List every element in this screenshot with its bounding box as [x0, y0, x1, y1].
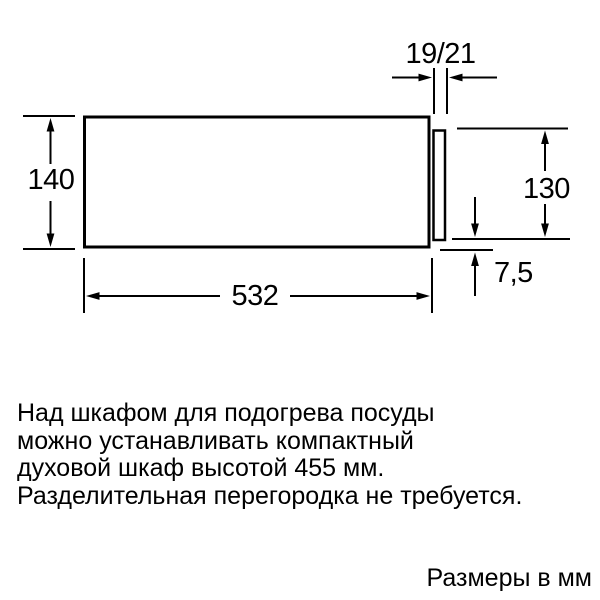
note-line-3: духовой шкаф высотой 455 мм. [17, 455, 595, 483]
note-line-1: Над шкафом для подогрева посуды [17, 400, 595, 428]
dimension-label-front-130: 130 [506, 172, 587, 206]
dimension-label-panel-19-21: 19/21 [400, 37, 481, 71]
appliance-front-panel [434, 131, 446, 241]
installation-note: Над шкафом для подогрева посуды можно ус… [17, 400, 595, 510]
screenshot-root: 140 19/21 130 532 7,5 Над шкафом для под… [0, 0, 600, 600]
note-line-2: можно устанавливать компактный [17, 428, 595, 456]
dimension-label-height-140: 140 [11, 163, 91, 197]
dimension-7-5 [440, 197, 493, 296]
note-line-4: Разделительная перегородка не требуется. [17, 483, 595, 511]
dimension-19-21 [392, 68, 497, 114]
units-label: Размеры в мм [427, 564, 592, 592]
dimension-label-offset-7-5: 7,5 [494, 256, 564, 290]
dimension-label-width-532: 532 [213, 279, 297, 313]
appliance-body-outline [85, 117, 430, 247]
